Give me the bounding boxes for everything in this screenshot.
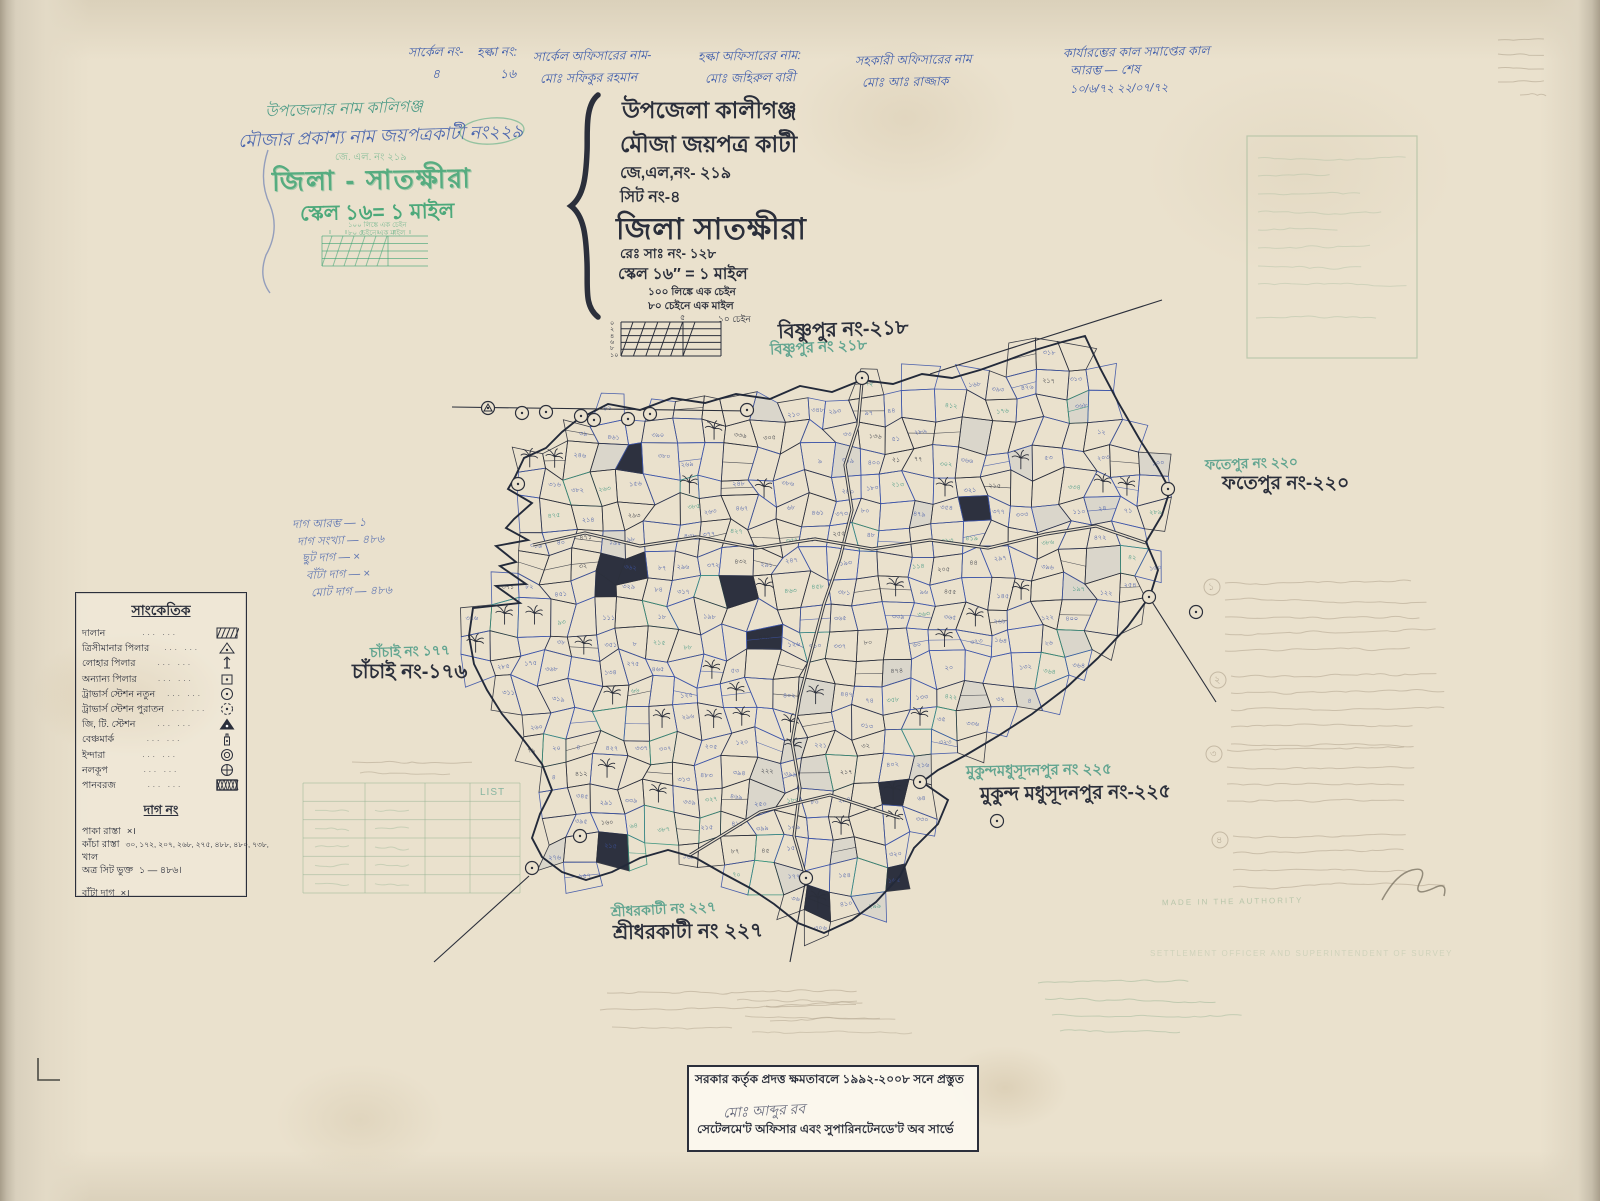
legend-item: ইন্দারা··· ···: [82, 749, 240, 764]
dag-row-value: ৩০, ১৭২, ২০৭, ২৬৮, ২৭৫, ৪৮৮, ৪৮০, ৭৩৮,: [126, 840, 269, 849]
legend-item: ট্রাভার্স স্টেশন নতুন··· ···: [82, 688, 240, 703]
neighbor-label-ink: ফতেপুর নং-২২০: [1222, 469, 1349, 501]
legend-item-label: অন্যান্য পিলার: [82, 673, 137, 688]
legend-item: নলকূপ··· ···: [82, 764, 240, 779]
dag-row-label: খাল: [82, 852, 98, 863]
legend-dots: ··· ···: [114, 735, 214, 746]
legend-dots: ··· ···: [137, 675, 214, 686]
header-col-label: হল্কা নং:: [477, 44, 517, 65]
legend-title: সাংকেতিক: [76, 599, 246, 623]
dag-row: বাঁটা দাগ×।: [82, 887, 240, 900]
stamp-line1: সরকার কর্তৃক প্রদত্ত ক্ষমতাবলে ১৯৯২-২০০৮…: [689, 1067, 977, 1091]
legend-item: জি, টি. স্টেশন··· ···: [82, 718, 240, 733]
note-marker-number: ২: [1214, 673, 1221, 690]
dag-row-label: কাঁচা রাস্তা: [82, 839, 120, 850]
legend-dots: ··· ···: [116, 781, 214, 792]
neighbor-label-ink: মুকুন্দ মধুসূদনপুর নং-২২৫: [980, 777, 1171, 812]
chain-note-2: ৮০ চেইনে এক মাইল: [648, 299, 734, 316]
legend-symbol-crosshatch-icon: [214, 778, 240, 795]
dag-row: অত্র সিট ভুক্ত১ — ৪৮৬।: [82, 864, 240, 877]
legend-item-label: ট্রাভার্স স্টেশন নতুন: [82, 688, 155, 703]
legend-item: ত্রিসীমানার পিলার··· ···: [82, 642, 240, 657]
header-col-value: মোঃ জহিরুল বারী: [705, 69, 796, 91]
legend-item: বেঞ্চমার্ক··· ···: [82, 733, 240, 748]
title-scale: স্কেল ১৬″ = ১ মাইল: [618, 261, 748, 288]
header-col-label: সার্কেল অফিসারের নাম-: [533, 47, 652, 69]
legend-item-label: নলকূপ: [82, 764, 108, 779]
neighbor-label-ink: বিষ্ণুপুর নং-২১৮: [777, 313, 909, 351]
faint-english-2: SETTLEMENT OFFICER AND SUPERINTENDENT OF…: [1150, 949, 1453, 958]
dag-row-value: ×।: [127, 826, 136, 837]
certification-stamp-box: সরকার কর্তৃক প্রদত্ত ক্ষমতাবলে ১৯৯২-২০০৮…: [687, 1065, 979, 1152]
header-col-value: ১৬: [500, 66, 517, 86]
neighbor-label-ink: শ্রীধরকাটী নং ২২৭: [613, 916, 764, 952]
legend-dots: ··· ···: [108, 766, 214, 777]
dag-row-label: অত্র সিট ভুক্ত: [82, 865, 133, 876]
legend-item-label: ত্রিসীমানার পিলার: [82, 642, 149, 657]
scanned-cadastral-map-sheet: ৩৭৬৩৭১২৮৫৩১১৩১৯৮২১৭৫২৬০৭৯৩১৬৪৭৫৪০৪৫১৯৩৩৮…: [0, 0, 1600, 1201]
header-col-label: সহকারী অফিসারের নাম: [855, 51, 972, 73]
legend-item-label: বেঞ্চমার্ক: [82, 733, 114, 748]
legend-dots: ··· ···: [136, 659, 214, 670]
legend-dots: ··· ···: [105, 751, 214, 762]
dag-section-title: দাগ নং: [76, 802, 246, 822]
faint-english-1: MADE IN THE AUTHORITY: [1162, 896, 1304, 907]
legend-item: দালান··· ···: [82, 627, 240, 642]
legend-item: অন্যান্য পিলার··· ···: [82, 673, 240, 688]
legend-item-label: লোহার পিলার: [82, 657, 136, 672]
legend-dots: ··· ···: [149, 644, 214, 655]
legend-dots: ··· ···: [164, 705, 214, 716]
legend-dots: ··· ···: [155, 690, 214, 701]
legend-item-label: দালান: [82, 627, 105, 642]
title-jl-no: জে,এল,নং- ২১৯: [620, 160, 731, 187]
dag-row-value: ১ — ৪৮৬।: [139, 865, 182, 876]
dag-row-value: ×।: [121, 888, 130, 899]
header-col-label: হল্কা অফিসারের নাম:: [698, 47, 801, 69]
legend-item: পানবরজ··· ···: [82, 779, 240, 794]
header-col-value: মোঃ আঃ রাজ্জাক: [862, 73, 949, 95]
list-table-header: LIST: [480, 787, 505, 798]
header-col-value2: ১০/৬/৭২ ২২/০৭/৭২: [1070, 79, 1169, 100]
plot-summary-line: মোট দাগ — ৪৮৬: [311, 582, 393, 604]
neighbor-label-ink: চাঁচাই নং-১৭৬: [352, 657, 467, 690]
dag-row: পাকা রাস্তা×।: [82, 825, 240, 838]
dag-row-label: পাকা রাস্তা: [82, 826, 121, 837]
legend-item: লোহার পিলার··· ···: [82, 657, 240, 672]
header-col-value: ৪: [432, 66, 440, 86]
header-col-value: মোঃ সফিকুর রহমান: [540, 69, 638, 91]
legend-item-label: ইন্দারা: [82, 749, 105, 764]
note-marker-number: ৪: [1216, 833, 1223, 850]
hw-chain2: ৮০ চেইনে এক মাইল: [348, 227, 405, 239]
note-marker-number: ৩: [1210, 747, 1217, 764]
legend-item-label: পানবরজ: [82, 779, 116, 794]
legend-dots: ··· ···: [135, 720, 214, 731]
note-marker-number: ১: [1208, 580, 1215, 597]
dag-row: খাল: [82, 851, 240, 864]
legend-item: ট্রাভার্স স্টেশন পুরাতন··· ···: [82, 703, 240, 718]
text-overlay: LIST০২৪৬৮১০৫১০ চেইন১২৩৪সার্কেল নং-৪হল্কা…: [0, 0, 1600, 1201]
header-col-label: সার্কেল নং-: [408, 44, 464, 65]
legend-item-label: জি, টি. স্টেশন: [82, 718, 135, 733]
dag-row-label: বাঁটা দাগ: [82, 888, 115, 899]
scale-tick: ১০: [610, 350, 618, 361]
legend-box: সাংকেতিকদালান··· ···ত্রিসীমানার পিলার···…: [75, 592, 247, 897]
dag-row: কাঁচা রাস্তা৩০, ১৭২, ২০৭, ২৬৮, ২৭৫, ৪৮৮,…: [82, 838, 240, 851]
legend-dots: ··· ···: [105, 629, 214, 640]
legend-item-label: ট্রাভার্স স্টেশন পুরাতন: [82, 703, 164, 718]
